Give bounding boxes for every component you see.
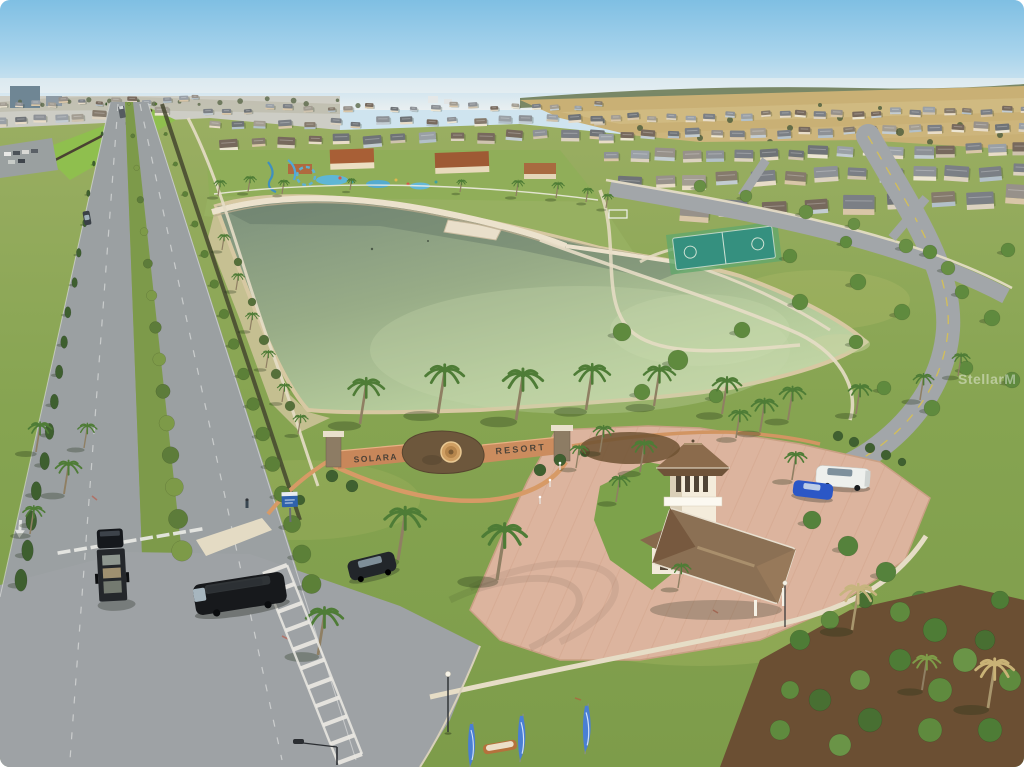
house xyxy=(561,130,581,142)
roof-ridge xyxy=(797,112,804,113)
cargo xyxy=(103,568,121,579)
house-roof xyxy=(0,118,6,125)
house-roof xyxy=(1012,142,1024,151)
conifer-tree xyxy=(40,452,50,469)
distant-tree xyxy=(265,96,270,101)
house xyxy=(965,142,983,153)
palm-crown xyxy=(607,195,609,197)
bush xyxy=(781,681,799,699)
fountain-center xyxy=(449,450,454,455)
palm-crown xyxy=(38,424,41,427)
house xyxy=(836,146,855,158)
bush xyxy=(150,322,162,334)
house-roof xyxy=(777,130,791,137)
palm-shadow xyxy=(328,421,361,430)
house xyxy=(1013,163,1024,176)
palm-shadow xyxy=(207,196,219,199)
conifer-tree xyxy=(61,336,68,349)
tree xyxy=(265,456,280,471)
palm-crown xyxy=(590,367,595,372)
house-wall xyxy=(843,209,874,215)
bush xyxy=(131,134,135,138)
house-roof xyxy=(843,195,875,209)
house xyxy=(909,124,923,133)
parked-car xyxy=(13,151,20,155)
palm-crown xyxy=(219,181,221,183)
tree xyxy=(210,280,219,289)
roof-ridge xyxy=(280,140,293,141)
house xyxy=(780,111,793,118)
house-wall xyxy=(400,122,412,125)
palm-shadow xyxy=(772,479,792,485)
parked-car xyxy=(4,152,11,156)
palm-crown xyxy=(223,235,225,237)
house xyxy=(477,133,496,145)
house xyxy=(631,150,651,162)
house xyxy=(852,111,866,119)
palm-crown xyxy=(67,462,71,466)
house-roof xyxy=(706,150,724,158)
bush xyxy=(248,298,256,306)
tree xyxy=(899,239,913,253)
house-wall xyxy=(343,110,353,112)
house xyxy=(980,109,994,117)
conifer-tree xyxy=(50,394,58,409)
distant-tree xyxy=(355,103,360,108)
lamp-globe xyxy=(445,671,450,676)
bush xyxy=(881,450,891,460)
distant-tree xyxy=(217,100,222,105)
bush xyxy=(978,718,1002,742)
conifer-tree xyxy=(72,277,78,287)
house xyxy=(343,106,354,112)
palm-crown xyxy=(725,379,729,383)
tree xyxy=(238,368,250,380)
tree xyxy=(877,381,891,395)
tree xyxy=(219,309,229,319)
house-wall xyxy=(232,127,244,130)
aerial-photo: SOLARA RESORT xyxy=(0,0,1024,767)
house xyxy=(304,122,317,129)
house xyxy=(685,127,702,137)
palm-crown xyxy=(618,477,621,480)
palm-crown xyxy=(322,610,327,615)
palm-crown xyxy=(520,372,526,378)
house xyxy=(814,111,828,119)
house xyxy=(944,108,957,115)
tree xyxy=(1001,243,1015,257)
bush xyxy=(858,708,882,732)
house-wall xyxy=(631,158,650,162)
house xyxy=(909,110,922,118)
roof-ridge xyxy=(997,126,1007,127)
palm-crown xyxy=(657,368,662,373)
lamp-globe xyxy=(783,581,787,585)
house-wall xyxy=(668,136,679,138)
house xyxy=(640,129,656,139)
house-wall xyxy=(192,98,199,99)
tree xyxy=(924,400,940,416)
house xyxy=(498,115,513,124)
car-glass xyxy=(84,215,90,221)
house xyxy=(400,116,414,124)
house xyxy=(1005,184,1024,206)
roof-ridge xyxy=(990,147,1004,148)
house-wall xyxy=(304,127,315,129)
house xyxy=(1002,106,1014,113)
house-wall xyxy=(923,112,936,115)
palm-crown xyxy=(364,381,369,386)
conifer-tree xyxy=(101,132,103,136)
tree xyxy=(849,335,863,349)
roof-ridge xyxy=(629,114,637,115)
house xyxy=(1018,123,1024,133)
roof-ridge xyxy=(658,179,673,180)
gatehouse-shadow xyxy=(650,600,782,620)
tree xyxy=(838,536,858,556)
bush xyxy=(833,431,843,441)
house xyxy=(843,126,856,134)
house-wall xyxy=(561,138,579,142)
palm-crown xyxy=(858,386,861,389)
house xyxy=(831,109,845,117)
cargo xyxy=(102,555,120,566)
tree xyxy=(848,218,860,230)
house xyxy=(55,114,70,123)
house xyxy=(966,191,996,210)
palm-crown xyxy=(643,442,647,446)
bush xyxy=(923,618,947,642)
field-tree xyxy=(927,139,933,145)
palm-crown xyxy=(32,507,35,510)
conifer-tree xyxy=(55,365,63,379)
house-roof xyxy=(641,129,656,136)
house-wall xyxy=(890,112,901,114)
house-wall xyxy=(283,108,293,110)
palm-shadow xyxy=(736,431,760,438)
bush xyxy=(128,103,131,106)
house-wall xyxy=(944,113,955,115)
house-wall xyxy=(611,119,621,121)
house xyxy=(715,171,739,186)
bush xyxy=(975,630,995,650)
terracotta-roof xyxy=(435,151,490,169)
tree xyxy=(923,245,937,259)
house-wall xyxy=(222,113,231,115)
light-head xyxy=(293,739,304,744)
tree xyxy=(709,389,723,403)
tree xyxy=(799,205,813,219)
pillar-cap xyxy=(551,425,573,431)
house xyxy=(818,128,835,138)
tree xyxy=(293,545,311,563)
bush xyxy=(156,384,170,398)
house xyxy=(654,147,676,161)
palm-crown xyxy=(237,274,239,276)
house-roof xyxy=(278,120,292,127)
parked-car xyxy=(8,160,15,164)
palm-crown xyxy=(461,180,463,182)
conifer-tree xyxy=(87,190,91,197)
tree xyxy=(201,250,209,258)
house xyxy=(668,131,681,139)
roof-ridge xyxy=(845,129,852,130)
cargo xyxy=(103,581,122,594)
palm-shadow xyxy=(625,404,654,412)
house xyxy=(799,127,812,135)
house xyxy=(725,111,736,118)
house xyxy=(15,117,28,125)
house xyxy=(890,107,902,114)
house-roof xyxy=(914,146,934,155)
tree xyxy=(734,322,750,338)
house xyxy=(703,114,717,122)
palm-crown xyxy=(922,375,925,378)
palm-shadow xyxy=(254,368,267,372)
parked-car xyxy=(22,150,29,154)
house-wall xyxy=(449,106,457,108)
tree xyxy=(283,515,300,532)
house xyxy=(931,191,957,207)
distant-structure xyxy=(428,96,438,103)
house-roof xyxy=(561,130,579,138)
distant-tree xyxy=(303,101,308,106)
tree xyxy=(173,162,178,167)
tree xyxy=(164,132,167,135)
palm-crown xyxy=(283,385,285,387)
house xyxy=(882,125,898,135)
tower-cornice xyxy=(664,497,722,506)
roof-ridge xyxy=(779,133,789,134)
house xyxy=(277,137,296,149)
bush xyxy=(259,335,269,345)
bush xyxy=(849,437,859,447)
tree xyxy=(613,323,631,341)
palm-crown xyxy=(249,177,251,179)
bush xyxy=(326,470,338,482)
tree xyxy=(876,562,896,582)
pedestrian-body xyxy=(246,501,249,508)
house xyxy=(252,138,267,147)
distant-tree xyxy=(198,103,201,106)
bush xyxy=(790,630,810,650)
house xyxy=(843,195,876,215)
palm-crown xyxy=(402,510,408,516)
roof-ridge xyxy=(94,113,104,114)
palm-crown xyxy=(791,388,795,392)
house-roof xyxy=(730,131,745,138)
house-wall xyxy=(333,141,350,145)
palm-crown xyxy=(856,587,861,592)
house xyxy=(376,116,391,125)
house xyxy=(253,121,267,129)
house xyxy=(627,112,641,120)
house xyxy=(519,115,534,124)
bush xyxy=(821,611,839,629)
house xyxy=(951,124,965,133)
tree xyxy=(803,511,821,529)
house xyxy=(350,122,361,129)
palm-shadow xyxy=(285,652,320,662)
house-wall xyxy=(78,103,85,104)
conifer-tree xyxy=(15,569,27,591)
palm-crown xyxy=(517,181,519,183)
palm-shadow xyxy=(597,501,616,506)
house xyxy=(620,132,635,141)
bush xyxy=(829,734,851,756)
roof-finial xyxy=(692,440,695,443)
tree xyxy=(182,191,188,197)
bush xyxy=(146,290,157,301)
house xyxy=(973,121,990,131)
house-wall xyxy=(750,135,766,138)
palm-shadow xyxy=(696,412,723,420)
water-bird xyxy=(371,248,373,250)
house-wall xyxy=(179,100,188,102)
field-tree xyxy=(727,117,733,123)
house xyxy=(451,133,466,141)
house xyxy=(330,118,343,126)
house xyxy=(533,129,549,139)
palm-crown xyxy=(557,183,559,185)
bush xyxy=(534,464,546,476)
palm-crown xyxy=(960,354,963,357)
house xyxy=(730,131,746,141)
tree xyxy=(783,249,797,263)
house xyxy=(92,110,108,120)
house xyxy=(604,152,620,161)
tree xyxy=(941,261,955,275)
bush xyxy=(953,648,977,672)
house-wall xyxy=(474,124,487,127)
conifer-tree xyxy=(22,540,34,561)
bush xyxy=(143,259,152,268)
tree xyxy=(740,190,752,202)
house-wall xyxy=(686,120,696,122)
palm-crown xyxy=(680,565,683,568)
bush xyxy=(234,258,242,266)
house xyxy=(474,118,488,126)
water-bird xyxy=(427,240,429,242)
palm-crown xyxy=(300,416,302,418)
house xyxy=(944,165,971,182)
house xyxy=(788,150,805,161)
roof-ridge xyxy=(810,149,826,150)
rock-texture xyxy=(422,455,442,465)
tree xyxy=(894,304,910,320)
tree xyxy=(634,384,650,400)
palm-crown xyxy=(925,657,929,661)
house-wall xyxy=(734,158,753,162)
wheels xyxy=(95,574,99,584)
house-wall xyxy=(913,176,936,181)
palm-crown xyxy=(602,427,605,430)
house-roof xyxy=(1006,184,1024,200)
tree xyxy=(192,221,199,228)
clubhouse-building xyxy=(524,163,556,179)
house xyxy=(750,128,767,138)
house xyxy=(647,116,658,123)
house xyxy=(71,114,85,122)
bush xyxy=(770,720,790,740)
bush xyxy=(999,669,1021,691)
roof-ridge xyxy=(212,123,219,124)
house xyxy=(785,171,808,186)
house xyxy=(936,146,957,158)
tree xyxy=(155,103,157,105)
house xyxy=(333,133,351,144)
house xyxy=(33,115,47,123)
house xyxy=(711,130,724,138)
house xyxy=(390,133,407,143)
palm-shadow xyxy=(272,195,282,198)
distant-tree xyxy=(86,97,91,102)
conifer-tree xyxy=(92,161,95,166)
palm-crown xyxy=(992,662,998,668)
house xyxy=(666,113,678,120)
tree xyxy=(694,180,706,192)
house-wall xyxy=(683,159,702,163)
bollard-head xyxy=(549,479,552,482)
water-sheen xyxy=(610,294,790,366)
house xyxy=(988,144,1008,156)
palm-shadow xyxy=(618,471,641,477)
house xyxy=(807,145,829,159)
house xyxy=(795,110,808,118)
house xyxy=(599,134,615,144)
house-roof xyxy=(533,129,548,137)
bush xyxy=(898,458,906,466)
house-wall xyxy=(741,119,753,121)
palm-shadow xyxy=(576,203,586,206)
pool xyxy=(316,175,348,185)
clubhouse-building xyxy=(435,151,490,174)
bush xyxy=(991,591,1009,609)
palm-shadow xyxy=(40,493,64,500)
bush xyxy=(890,602,910,622)
palm-shadow xyxy=(835,413,857,419)
tree xyxy=(984,310,1000,326)
house-wall xyxy=(706,158,724,162)
conifer-tree xyxy=(105,103,107,106)
house xyxy=(309,136,324,145)
house-wall xyxy=(590,121,602,123)
bush xyxy=(153,353,166,366)
sign-header xyxy=(281,492,297,497)
house-wall xyxy=(599,140,614,143)
palm-shadow xyxy=(901,399,920,404)
palm-shadow xyxy=(15,451,37,457)
palm-shadow xyxy=(661,587,679,592)
house xyxy=(568,114,583,123)
house xyxy=(363,135,384,148)
house xyxy=(590,116,604,124)
palm-shadow xyxy=(942,376,959,381)
house xyxy=(209,121,222,129)
roof-ridge xyxy=(280,122,289,123)
roof-ridge xyxy=(392,136,403,137)
house xyxy=(426,119,439,127)
house xyxy=(686,116,698,123)
house-roof xyxy=(966,191,994,205)
umbrella xyxy=(395,179,398,182)
wheels xyxy=(126,572,130,582)
palm-shadow xyxy=(269,402,282,406)
palm-shadow xyxy=(764,419,788,426)
house xyxy=(927,125,943,135)
conifer-tree xyxy=(65,307,71,318)
house-wall xyxy=(31,104,40,106)
